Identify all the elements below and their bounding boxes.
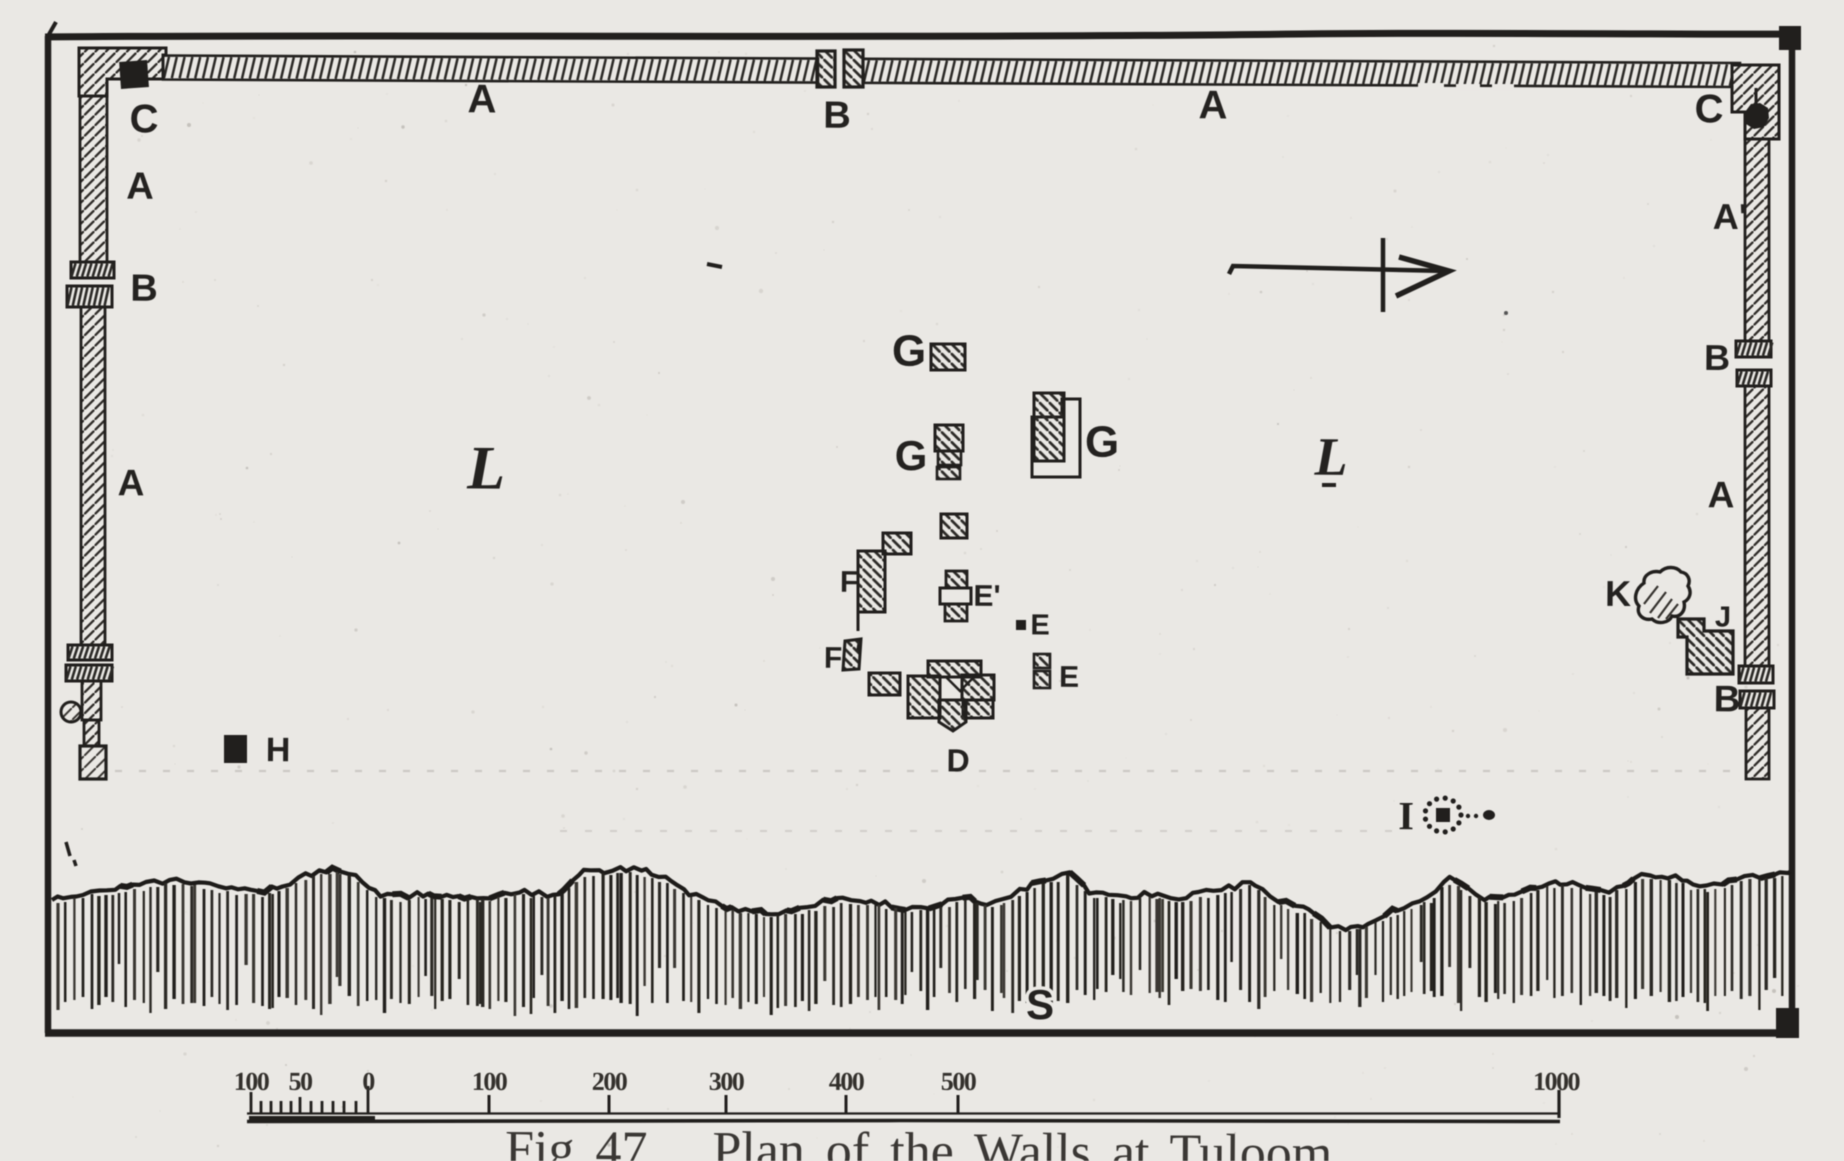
svg-text:A: A: [126, 166, 154, 208]
svg-text:G: G: [895, 432, 928, 479]
svg-text:C: C: [1694, 87, 1723, 131]
svg-text:H: H: [266, 731, 291, 769]
svg-text:500: 500: [941, 1067, 977, 1096]
svg-text:0: 0: [362, 1067, 375, 1096]
svg-text:A: A: [1198, 83, 1227, 127]
svg-text:F: F: [840, 566, 859, 599]
svg-text:K: K: [1605, 573, 1631, 614]
svg-text:A: A: [467, 77, 496, 121]
svg-text:A: A: [1708, 474, 1735, 515]
svg-text:G: G: [1085, 418, 1120, 467]
svg-text:J: J: [1715, 601, 1731, 633]
svg-text:A': A': [1713, 196, 1748, 237]
svg-text:300: 300: [709, 1067, 745, 1096]
svg-text:G: G: [892, 327, 927, 376]
svg-text:400: 400: [829, 1067, 865, 1096]
svg-text:100: 100: [234, 1067, 270, 1096]
svg-text:E': E': [973, 580, 1000, 613]
svg-text:100: 100: [472, 1067, 508, 1096]
svg-text:A: A: [118, 462, 145, 503]
svg-text:L: L: [466, 434, 505, 502]
svg-text:E: E: [1059, 661, 1079, 694]
svg-text:S: S: [1026, 981, 1054, 1028]
svg-text:I: I: [1398, 793, 1414, 838]
svg-text:B: B: [130, 268, 158, 310]
svg-text:F: F: [824, 642, 843, 675]
svg-text:Fig 47. Plan of the Walls at: Fig 47. Plan of the Walls at Tuloom.: [505, 1121, 1346, 1161]
svg-text:B: B: [823, 95, 851, 137]
svg-text:C: C: [129, 97, 158, 141]
svg-text:B: B: [1714, 678, 1741, 719]
svg-text:D: D: [946, 742, 969, 778]
svg-text:200: 200: [592, 1067, 628, 1096]
svg-text:50: 50: [288, 1067, 313, 1096]
svg-text:L: L: [1313, 427, 1347, 487]
svg-text:B: B: [1704, 337, 1730, 378]
svg-text:E: E: [1030, 609, 1050, 641]
svg-text:1000: 1000: [1533, 1067, 1581, 1096]
